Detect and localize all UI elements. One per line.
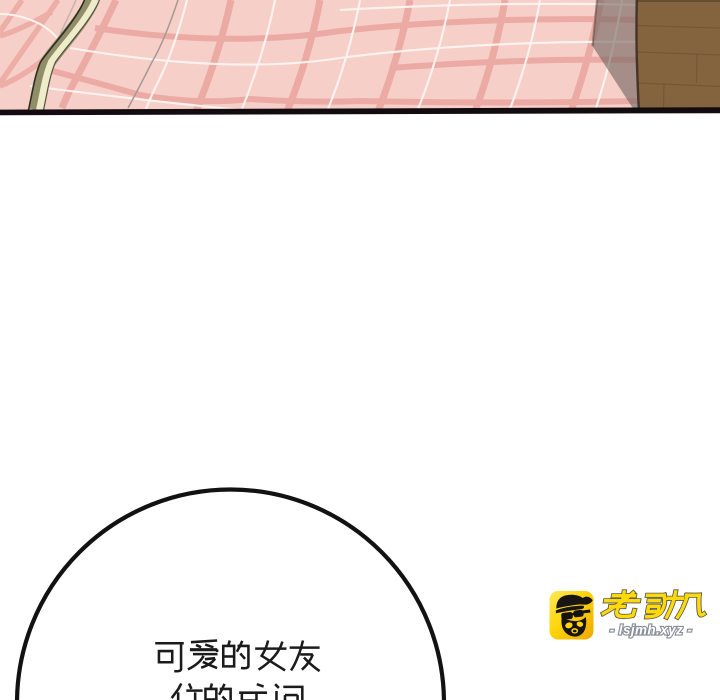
svg-text:- lsjmh.xyz -: - lsjmh.xyz - [610,623,693,638]
